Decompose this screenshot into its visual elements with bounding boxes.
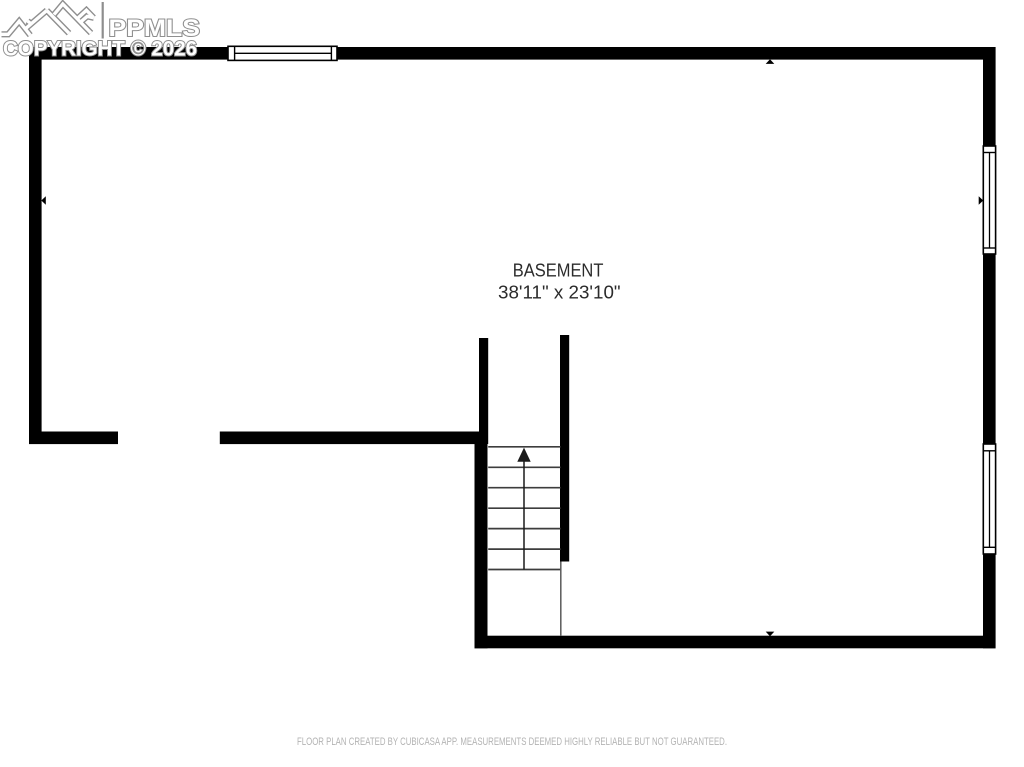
svg-text:COPYRIGHT © 2026: COPYRIGHT © 2026 <box>3 37 197 60</box>
svg-text:38'11" x 23'10": 38'11" x 23'10" <box>498 282 621 303</box>
svg-text:FLOOR PLAN CREATED BY CUBICASA: FLOOR PLAN CREATED BY CUBICASA APP. MEAS… <box>297 736 727 748</box>
svg-text:BASEMENT: BASEMENT <box>513 260 604 281</box>
